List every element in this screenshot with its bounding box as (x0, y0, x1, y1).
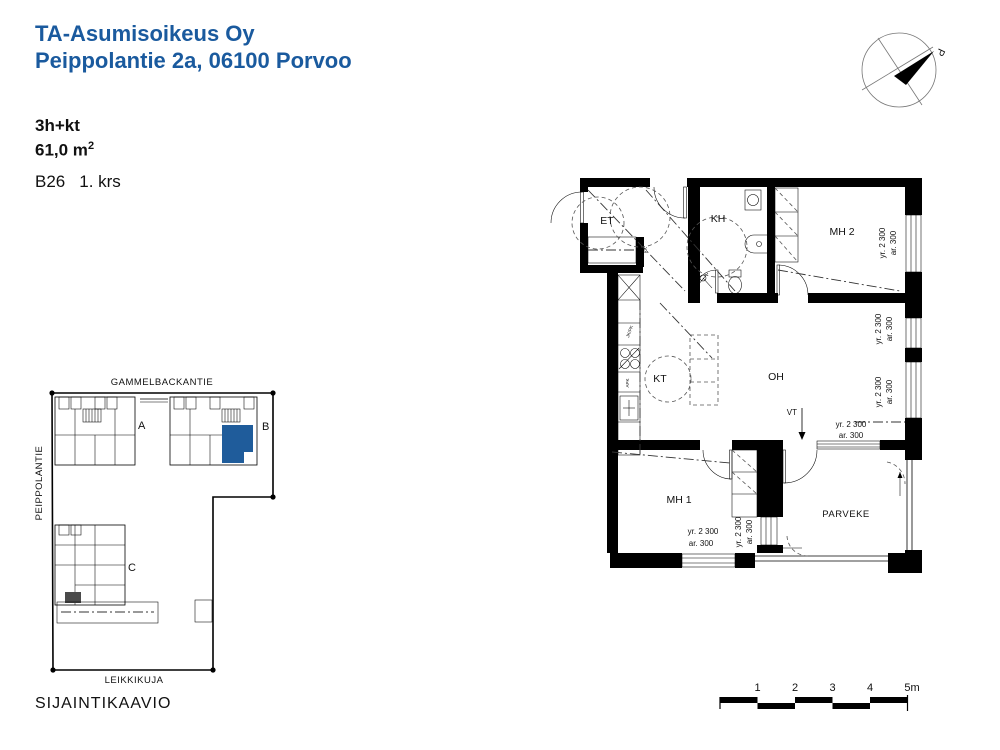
dim-ar-vt: ar. 300 (839, 431, 864, 440)
mh1-closets (732, 450, 757, 517)
dim-ar-oh-lower: ar. 300 (885, 379, 894, 404)
compass-cross-line (862, 47, 933, 90)
company-name: TA-Asumisoikeus Oy (35, 20, 352, 47)
window-oh-2 (906, 362, 921, 418)
toilet-icon (729, 270, 742, 294)
dim-yr-oh-lower: yr. 2 300 (874, 376, 883, 407)
mh2-door (777, 265, 808, 295)
apartment-area: 61,0 m2 (35, 140, 94, 161)
canopy-link (140, 399, 168, 402)
dimension-texts: yr. 2 300 ar. 300 yr. 2 300 ar. 300 yr. … (688, 227, 898, 548)
window-mh2 (906, 215, 921, 272)
vt-label: VT (787, 408, 797, 417)
compass-rose: P (845, 10, 955, 120)
floor-plan-sheet: { "header": { "company": "TA-Asumisoikeu… (0, 0, 1000, 750)
doors (551, 187, 817, 483)
scale-label-4: 4 (867, 682, 873, 694)
bathroom-fixtures (698, 190, 767, 294)
dim-yr-mh2: yr. 2 300 (878, 227, 887, 258)
highlighted-apartment-unit (222, 425, 253, 463)
dim-yr-mh1: yr. 2 300 (688, 527, 719, 536)
window-mh1-balcony (761, 517, 777, 545)
room-label-et: ET (600, 215, 614, 227)
balcony-door (783, 450, 817, 483)
building-c-marked-unit (65, 592, 81, 603)
window-mh1 (682, 554, 735, 567)
sink-icon (620, 396, 638, 420)
building-label-b: B (262, 421, 269, 433)
dim-ar-mh2: ar. 300 (889, 230, 898, 255)
room-label-parveke: PARVEKE (822, 509, 870, 520)
scale-bar-labels: 1 2 3 4 5m (754, 682, 919, 694)
fridge-label: JK/PK (625, 325, 634, 338)
room-label-kt: KT (653, 373, 667, 385)
dim-yr-vt: yr. 2 300 (836, 420, 867, 429)
down-arrow-icon (799, 432, 806, 440)
street-label-left: PEIPPOLANTIE (34, 446, 45, 521)
north-arrow-icon (894, 51, 934, 85)
area-superscript: 2 (88, 140, 94, 152)
entrance-door (551, 192, 584, 223)
vt-marker: VT (787, 408, 806, 440)
washbasin-icon (745, 235, 767, 253)
stove-icon (619, 348, 640, 369)
window-oh-balcony (817, 441, 880, 449)
room-label-mh1: MH 1 (666, 494, 691, 506)
dim-ar-mh1: ar. 300 (689, 539, 714, 548)
mh2-closets (775, 188, 798, 262)
dim-ar-mh1-side: ar. 300 (745, 519, 754, 544)
apartment-id: B261. krs (35, 172, 121, 192)
kitchen-fixtures: JK/PK APK (618, 275, 640, 455)
building-a (55, 397, 135, 465)
dim-yr-mh1-side: yr. 2 300 (734, 516, 743, 547)
window-oh-1 (906, 318, 921, 348)
room-label-mh2: MH 2 (829, 226, 854, 238)
property-address: Peippolantie 2a, 06100 Porvoo (35, 47, 352, 74)
street-label-bottom: LEIKKIKUJA (105, 675, 164, 686)
north-label: P (933, 46, 947, 57)
main-floor-plan: JK/PK APK KK (540, 160, 940, 630)
stairwell-door (654, 187, 687, 218)
building-b (170, 397, 257, 465)
shower-icon (698, 273, 712, 288)
mh1-door (703, 450, 732, 479)
carport (57, 600, 212, 623)
building-label-c: C (128, 562, 136, 574)
washing-machine-icon (745, 190, 761, 210)
scale-label-2: 2 (792, 682, 798, 694)
room-label-oh: OH (768, 371, 784, 383)
scale-label-1: 1 (754, 682, 760, 694)
room-label-kh: KH (711, 213, 726, 225)
floor-number: 1. krs (79, 172, 121, 191)
building-label-a: A (138, 420, 146, 432)
scale-bar-segments (720, 695, 908, 711)
apartment-type: 3h+kt (35, 116, 80, 136)
dishwasher-label: APK (625, 378, 630, 387)
dim-ar-oh-upper: ar. 300 (885, 316, 894, 341)
scale-label-5m: 5m (904, 682, 919, 694)
dim-yr-oh-upper: yr. 2 300 (874, 313, 883, 344)
unit-number: B26 (35, 172, 65, 191)
street-label-top: GAMMELBACKANTIE (111, 377, 214, 388)
scale-bar: 1 2 3 4 5m (715, 672, 945, 712)
site-plan-title: SIJAINTIKAAVIO (35, 695, 171, 713)
area-value: 61,0 m (35, 141, 88, 160)
title-block: TA-Asumisoikeus Oy Peippolantie 2a, 0610… (35, 20, 352, 74)
scale-label-3: 3 (829, 682, 835, 694)
kitchen-island (690, 335, 718, 405)
building-c (55, 525, 125, 605)
site-plan: GAMMELBACKANTIE PEIPPOLANTIE LEIKKIKUJA … (28, 368, 298, 718)
